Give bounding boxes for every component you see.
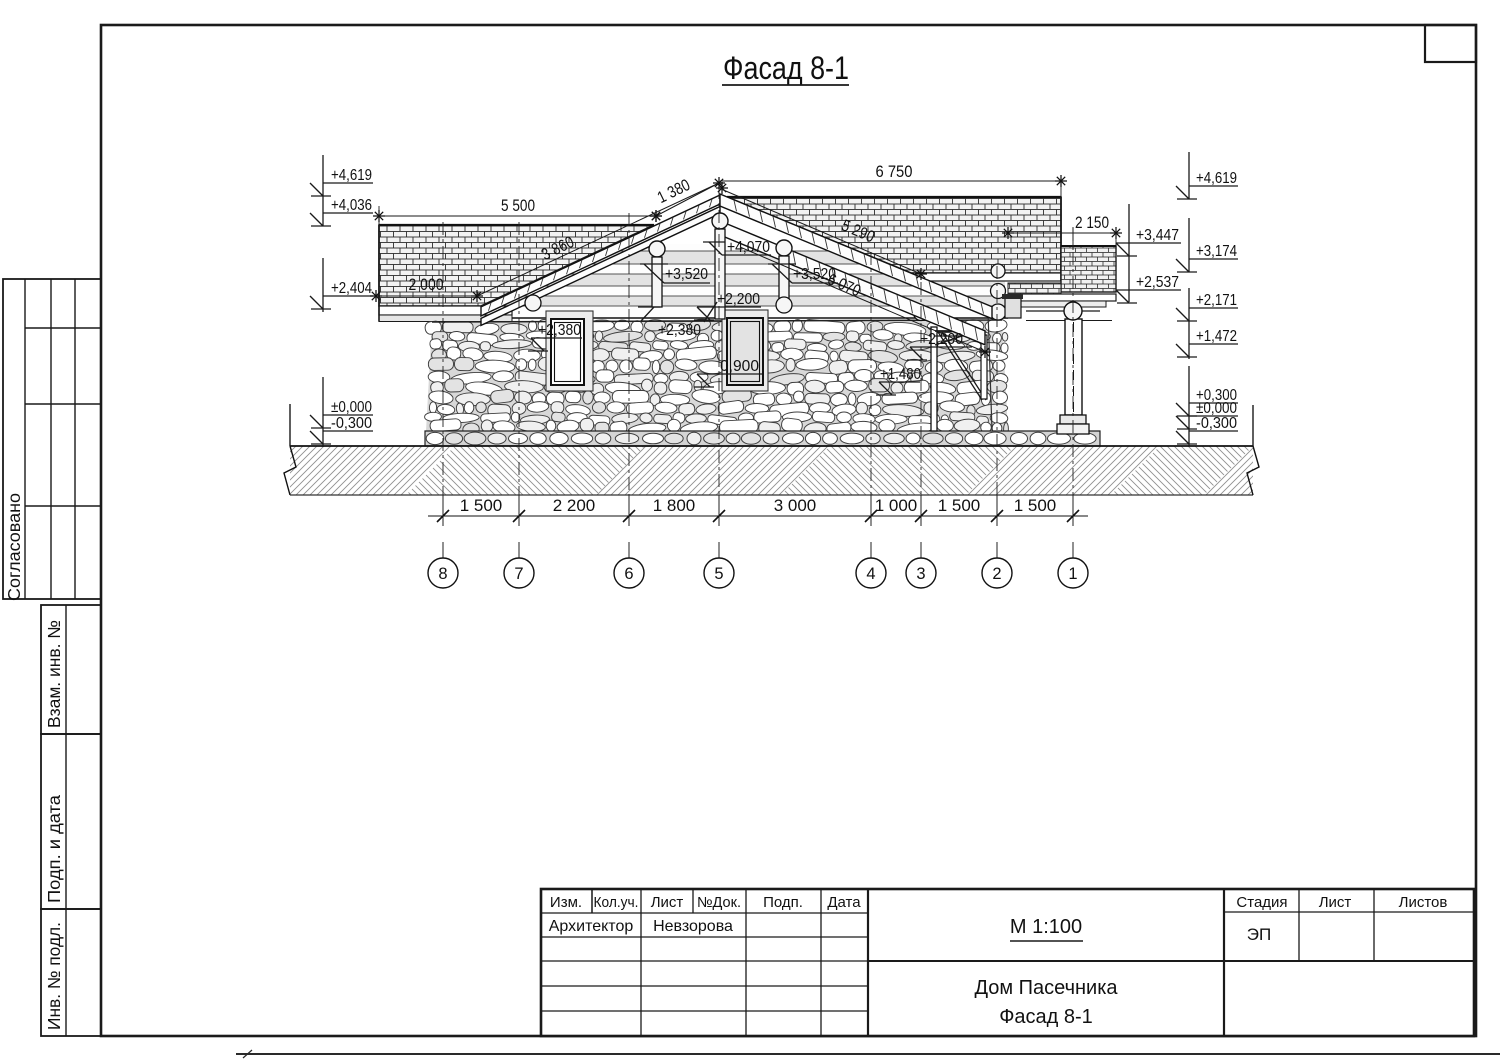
svg-text:2 200: 2 200 [553,496,596,515]
svg-text:ЭП: ЭП [1247,925,1271,944]
svg-text:+2,200: +2,200 [717,291,760,308]
svg-text:+2,404: +2,404 [331,280,372,297]
svg-text:3 000: 3 000 [774,496,817,515]
svg-text:-0,300: -0,300 [331,415,372,432]
svg-text:Инв. № подл.: Инв. № подл. [44,922,64,1030]
svg-text:2 150: 2 150 [1075,214,1109,232]
svg-text:+4,619: +4,619 [1196,170,1237,187]
svg-text:3: 3 [916,565,925,583]
svg-text:+2,380: +2,380 [538,322,581,339]
svg-text:Подп.: Подп. [763,894,803,911]
svg-text:2 000: 2 000 [409,276,444,294]
svg-text:№Док.: №Док. [697,895,741,911]
svg-text:5: 5 [714,565,723,583]
svg-text:Взам. инв. №: Взам. инв. № [44,620,64,728]
svg-text:2: 2 [992,565,1001,583]
svg-text:+2,171: +2,171 [1196,292,1237,309]
svg-text:Согласовано: Согласовано [4,493,24,601]
svg-text:Кол.уч.: Кол.уч. [594,895,639,911]
svg-text:+1,472: +1,472 [1196,328,1237,345]
svg-text:1 000: 1 000 [875,496,918,515]
svg-text:+4,036: +4,036 [331,197,372,214]
svg-text:1 500: 1 500 [1014,496,1057,515]
svg-text:1 500: 1 500 [460,496,503,515]
svg-text:+4,070: +4,070 [727,239,770,256]
svg-text:5 500: 5 500 [501,197,535,215]
svg-text:Архитектор: Архитектор [549,918,634,935]
svg-text:+3,174: +3,174 [1196,243,1237,260]
svg-text:Лист: Лист [651,894,684,911]
svg-text:+1,480: +1,480 [880,366,921,383]
svg-text:Подп. и дата: Подп. и дата [44,795,64,903]
svg-text:0,900: 0,900 [720,358,759,375]
svg-text:+4,619: +4,619 [331,167,372,184]
svg-text:Фасад 8-1: Фасад 8-1 [723,50,849,86]
svg-text:4: 4 [866,565,875,583]
svg-text:6 750: 6 750 [876,163,913,181]
svg-text:Дом Пасечника: Дом Пасечника [974,977,1118,999]
svg-text:-0,300: -0,300 [1196,415,1237,432]
svg-text:6: 6 [624,565,633,583]
svg-text:1 500: 1 500 [938,496,981,515]
svg-text:±0,000: ±0,000 [331,399,372,416]
svg-text:Фасад 8-1: Фасад 8-1 [999,1006,1093,1028]
svg-text:+3,447: +3,447 [1136,227,1179,244]
svg-text:1 800: 1 800 [653,496,696,515]
svg-text:Стадия: Стадия [1236,894,1287,911]
svg-text:Изм.: Изм. [550,894,582,911]
svg-text:+3,520: +3,520 [665,266,708,283]
svg-text:Листов: Листов [1399,894,1448,911]
svg-text:Невзорова: Невзорова [653,918,733,935]
svg-text:+2,380: +2,380 [658,322,701,339]
svg-text:1: 1 [1068,565,1077,583]
svg-text:Дата: Дата [827,894,861,911]
svg-text:7: 7 [514,565,523,583]
svg-text:+2,537: +2,537 [1136,274,1179,291]
svg-text:М 1:100: М 1:100 [1010,916,1082,938]
svg-text:8: 8 [438,565,447,583]
svg-text:Лист: Лист [1319,894,1352,911]
